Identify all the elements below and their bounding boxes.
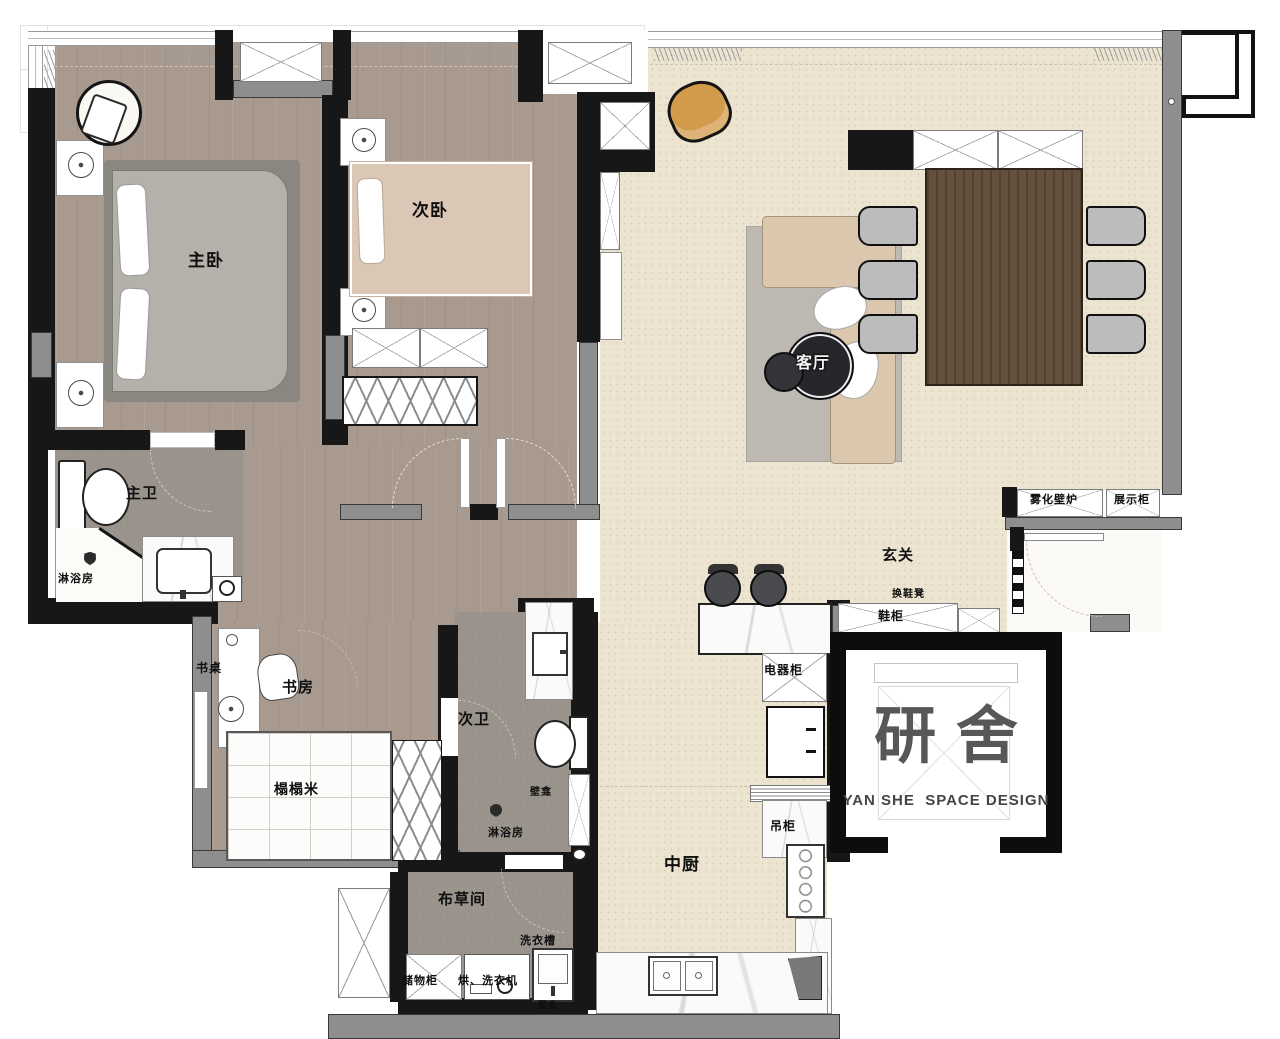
fan-icon	[352, 128, 376, 152]
closet-rail	[392, 740, 442, 861]
faucet	[560, 650, 568, 654]
fridge-handle	[806, 728, 816, 731]
wall-segment	[31, 332, 52, 378]
curtain-dash-line	[650, 64, 1162, 65]
toilet-bowl	[534, 720, 576, 768]
niche	[568, 774, 590, 846]
logo-top-bar	[874, 663, 1018, 683]
floor-drain	[572, 848, 587, 861]
room-label-foyer: 玄关	[882, 548, 914, 563]
wall-bottom	[328, 1014, 840, 1039]
cabinet	[600, 102, 650, 150]
fan-icon	[218, 696, 244, 722]
room-label-second-bath: 次卫	[458, 712, 490, 727]
label-appliance-cabinet: 电器柜	[764, 664, 803, 676]
label-display-cabinet: 展示柜	[1114, 495, 1150, 506]
wall-segment	[28, 88, 55, 450]
window-band	[28, 31, 217, 46]
label-washer-dryer: 烘、洗衣机	[458, 976, 518, 987]
dining-table	[925, 168, 1083, 386]
label-hanging-cabinet: 吊柜	[770, 820, 796, 832]
wall-segment	[233, 80, 333, 98]
laundry-sink-basin	[538, 954, 568, 984]
appliance-cabinet	[762, 653, 827, 702]
wall-segment	[55, 430, 150, 450]
bar-stool	[750, 570, 787, 607]
cabinet	[600, 252, 622, 340]
wall-segment	[573, 862, 598, 1010]
wall-segment	[1005, 517, 1182, 530]
bar-stool	[704, 570, 741, 607]
wall-segment	[333, 30, 351, 100]
floor-plan: 研舍 YAN SHE SPACE DESIGN 主卧 次卧 主卫 淋浴房 书桌 …	[0, 0, 1280, 1039]
label-storage-cabinet: 储物柜	[402, 976, 438, 987]
wall-segment	[577, 170, 600, 342]
sideboard-cabinet	[998, 130, 1083, 170]
label-laundry-sink: 洗衣槽	[520, 936, 556, 947]
wall-segment	[215, 430, 245, 450]
wardrobe-cabinet	[240, 42, 322, 82]
room-label-master-bedroom: 主卧	[188, 252, 224, 269]
curtain-hatch	[1094, 48, 1170, 61]
wall-segment	[1002, 487, 1017, 517]
room-label-master-bath: 主卫	[126, 486, 158, 501]
label-fog-fireplace: 雾化壁炉	[1030, 495, 1078, 506]
dining-chair	[858, 314, 918, 354]
curtain-hatch	[432, 48, 512, 59]
door-gap	[150, 432, 215, 448]
fridge-handle	[806, 750, 816, 753]
window-band	[351, 31, 521, 43]
tv-cabinet-dark	[848, 130, 913, 170]
clothes-rail	[342, 376, 478, 426]
window-band	[28, 46, 43, 92]
hinge-dot	[1168, 98, 1175, 105]
cabinet	[600, 172, 620, 250]
dining-chair	[858, 260, 918, 300]
wall-segment	[518, 30, 543, 102]
shoe-bench	[958, 608, 1000, 633]
dining-chair	[1086, 260, 1146, 300]
wardrobe-cabinet	[352, 328, 420, 368]
curtain-hatch	[44, 50, 56, 92]
shower-head-icon	[490, 804, 502, 816]
curtain-hatch	[158, 52, 216, 63]
room-label-study: 书房	[282, 680, 314, 695]
toilet-bowl	[82, 468, 130, 526]
shower-head-icon	[84, 552, 96, 564]
wall-segment	[1010, 527, 1024, 551]
wardrobe-cabinet	[420, 328, 488, 368]
dining-chair	[1086, 206, 1146, 246]
lamp-icon	[68, 380, 94, 406]
fan-icon	[352, 298, 376, 322]
sink-drain	[695, 972, 702, 979]
label-tatami: 榻榻米	[274, 782, 319, 796]
island-counter	[698, 603, 832, 655]
vanity-sink	[156, 548, 212, 594]
window-band	[194, 692, 208, 788]
wall-segment	[215, 30, 233, 100]
laundry-faucet	[551, 986, 555, 996]
cabinet	[548, 42, 632, 84]
logo-bottom-notch	[888, 837, 1000, 853]
logo-wordmark-en: YAN SHE SPACE DESIGN	[846, 790, 1046, 810]
label-desk: 书桌	[196, 662, 222, 674]
door-leaf	[496, 438, 506, 508]
wall-segment	[579, 342, 598, 508]
study-desk	[218, 628, 260, 748]
door-gap	[441, 698, 458, 756]
door-gap	[505, 855, 563, 869]
logo-wordmark-cn: 研舍	[846, 684, 1046, 776]
zone-dash-line	[600, 786, 752, 787]
room-label-second-bedroom: 次卧	[412, 202, 448, 219]
gas-stove	[786, 844, 825, 918]
label-shoe-bench: 换鞋凳	[892, 590, 925, 600]
sink-drain	[663, 972, 670, 979]
entry-door-post	[1012, 550, 1024, 614]
dining-chair	[1086, 314, 1146, 354]
window-band	[648, 31, 1162, 48]
lamp-icon	[68, 152, 94, 178]
room-label-master-shower: 淋浴房	[58, 574, 94, 585]
exterior-ledge	[1182, 95, 1239, 118]
room-label-second-shower: 淋浴房	[488, 828, 524, 839]
room-label-linen: 布草间	[438, 892, 486, 907]
washer-drum	[219, 580, 235, 596]
curtain-hatch	[654, 48, 742, 61]
label-niche-a: 壁龛	[530, 788, 552, 798]
wall-segment	[470, 504, 498, 520]
fridge	[766, 706, 825, 778]
label-shoe-cabinet: 鞋柜	[878, 610, 904, 622]
room-label-living: 客厅	[796, 356, 830, 372]
vanity-sink	[532, 632, 568, 676]
room-label-kitchen: 中厨	[664, 856, 700, 873]
desk-lamp-icon	[226, 634, 238, 646]
pillow	[357, 178, 386, 265]
pillow	[116, 183, 151, 276]
wall-segment	[28, 450, 48, 608]
pillow	[116, 287, 151, 380]
duct-cabinet	[338, 888, 390, 998]
faucet	[180, 590, 186, 599]
label-niche-b: 壁龛	[538, 1001, 558, 1010]
sideboard-cabinet	[913, 130, 998, 170]
entry-door-leaf	[1024, 533, 1104, 541]
exterior-ledge	[1182, 30, 1239, 35]
dining-chair	[858, 206, 918, 246]
